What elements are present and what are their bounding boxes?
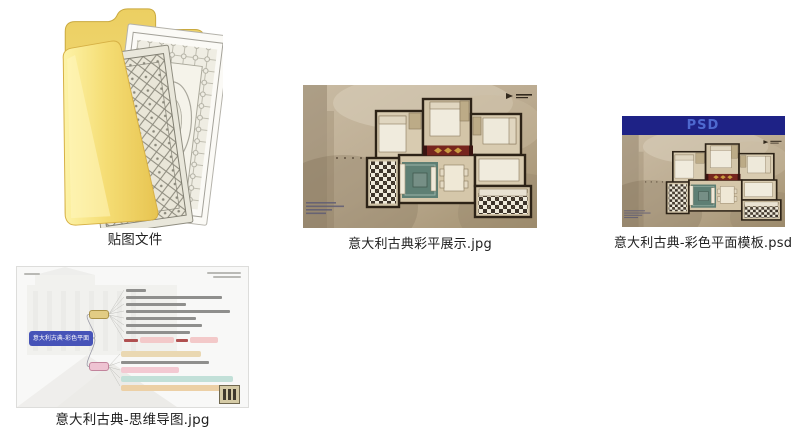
mindmap-corner-mark (24, 273, 40, 275)
mindmap-list-line (126, 324, 202, 327)
psd-badge: PSD (622, 116, 785, 135)
mindmap-root-node: 意大利古典-彩色平面 (29, 331, 93, 346)
mindmap-thumbnail: 意大利古典-彩色平面 (16, 266, 249, 408)
mindmap-list-line (126, 317, 196, 320)
psd-thumbnail: PSD (622, 116, 785, 231)
file-label: 意大利古典-彩色平面模板.psd (614, 236, 792, 251)
mindmap-highlight-teal (121, 376, 233, 382)
mindmap-warning-line (124, 337, 218, 343)
mindmap-branch-pink (89, 362, 109, 371)
mindmap-list-line (126, 296, 222, 299)
floorplan-thumbnail (303, 85, 537, 232)
file-label: 意大利古典-思维导图.jpg (55, 413, 209, 428)
mindmap-list-line (126, 303, 186, 306)
mindmap-branch-yellow (89, 310, 109, 319)
mindmap-list-line (126, 289, 146, 292)
file-tile-psd-template[interactable]: PSD 意大利古典-彩色平面模板.psd (610, 116, 796, 251)
floorplan-image-small (622, 135, 785, 227)
mindmap-list-line (126, 331, 190, 334)
file-tile-mindmap-jpg[interactable]: 意大利古典-彩色平面 意大利古典-思维 (16, 266, 249, 428)
file-tile-texture-folder[interactable]: 贴图文件 (25, 2, 245, 248)
file-label: 贴图文件 (108, 233, 163, 248)
mindmap-highlight-orange (121, 385, 227, 391)
folder-icon (47, 2, 223, 228)
mindmap-logo-icon (219, 385, 240, 404)
mindmap-watermark-line (207, 272, 241, 274)
file-label: 意大利古典彩平展示.jpg (348, 237, 492, 252)
mindmap-highlight-tan (121, 351, 201, 357)
mindmap-highlight-pink (121, 367, 179, 373)
file-explorer-canvas: 贴图文件 意大利古典彩平展示.jpg PSD 意大利古典-彩色平面模板.psd (0, 0, 800, 433)
mindmap-list-line (121, 361, 209, 364)
mindmap-watermark-line (213, 276, 241, 278)
floorplan-image (303, 85, 537, 228)
file-tile-color-plan-jpg[interactable]: 意大利古典彩平展示.jpg (295, 85, 545, 252)
mindmap-list-line (126, 310, 230, 313)
